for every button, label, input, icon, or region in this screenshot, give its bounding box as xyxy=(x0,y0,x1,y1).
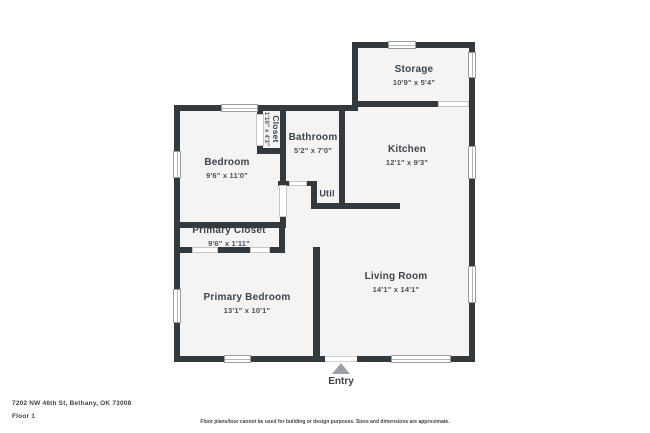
room-label-kitchen: Kitchen 12'1" x 9'3" xyxy=(386,144,428,168)
room-label-util: Util xyxy=(319,188,334,199)
disclaimer-text: Floor plans/tour cannot be used for buil… xyxy=(0,419,650,425)
door-bedroom xyxy=(279,185,287,217)
room-name: Primary Closet xyxy=(192,225,265,238)
wall-primary-living-divider xyxy=(313,247,320,362)
room-label-primary-bedroom: Primary Bedroom 13'1" x 10'1" xyxy=(204,292,291,316)
room-dimensions: 10'9" x 5'4" xyxy=(393,77,435,88)
window-bedroom-left xyxy=(173,151,181,178)
window-living-right xyxy=(468,266,476,303)
window-primary-bedroom-left xyxy=(173,289,181,323)
room-name: Living Room xyxy=(365,271,428,284)
wall-kitchen-bottom xyxy=(311,203,400,209)
wall-main-left xyxy=(174,105,180,362)
window-bedroom-top xyxy=(221,104,258,112)
room-dimensions: 9'6" x 1'11" xyxy=(192,238,265,249)
wall-main-top xyxy=(174,105,358,111)
window-primary-bedroom-bottom xyxy=(224,355,251,363)
room-name: Kitchen xyxy=(386,144,428,157)
entry-opening xyxy=(325,356,357,362)
window-storage-top xyxy=(388,41,416,49)
wall-storage-left xyxy=(352,42,358,106)
room-name: Bathroom xyxy=(289,132,338,145)
room-label-closet: Closet 1'10" x 4'3" xyxy=(261,112,281,146)
floorplan-page: Storage 10'9" x 5'4" Bedroom 9'6" x 11'0… xyxy=(0,0,650,433)
wall-bottom-seg1 xyxy=(174,356,225,362)
room-dimensions: 1'10" x 4'3" xyxy=(261,112,270,146)
room-dimensions: 14'1" x 14'1" xyxy=(365,284,428,295)
room-dimensions: 5'2" x 7'0" xyxy=(289,145,338,156)
room-name: Bedroom xyxy=(204,157,249,170)
entry-label: Entry xyxy=(328,376,354,387)
room-name: Util xyxy=(319,188,334,199)
room-label-bedroom: Bedroom 9'6" x 11'0" xyxy=(204,157,249,181)
room-dimensions: 12'1" x 9'3" xyxy=(386,157,428,168)
door-storage xyxy=(438,101,469,107)
room-label-storage: Storage 10'9" x 5'4" xyxy=(393,64,435,88)
room-dimensions: 13'1" x 10'1" xyxy=(204,305,291,316)
entry-arrow-icon xyxy=(332,363,350,374)
wall-right xyxy=(469,42,475,362)
window-kitchen-right xyxy=(468,146,476,179)
window-storage-right xyxy=(468,52,476,78)
window-living-bottom xyxy=(391,355,451,363)
room-label-bathroom: Bathroom 5'2" x 7'0" xyxy=(289,132,338,156)
room-name: Storage xyxy=(393,64,435,77)
address-text: 7202 NW 46th St, Bethany, OK 73008 xyxy=(12,400,131,407)
wall-primary-bedroom-top3 xyxy=(270,247,285,253)
wall-closet-bathroom xyxy=(280,105,286,186)
room-name: Primary Bedroom xyxy=(204,292,291,305)
room-dimensions: 9'6" x 11'0" xyxy=(204,170,249,181)
wall-bathroom-kitchen xyxy=(339,105,345,208)
wall-primary-bedroom-top1 xyxy=(174,247,192,253)
door-bathroom xyxy=(289,181,307,186)
room-label-living-room: Living Room 14'1" x 14'1" xyxy=(365,271,428,295)
room-label-primary-closet: Primary Closet 9'6" x 1'11" xyxy=(192,225,265,249)
wall-storage-bottom xyxy=(352,101,438,107)
wall-bottom-seg4 xyxy=(450,356,475,362)
room-name: Closet xyxy=(270,112,281,146)
wall-bottom-seg3 xyxy=(357,356,392,362)
